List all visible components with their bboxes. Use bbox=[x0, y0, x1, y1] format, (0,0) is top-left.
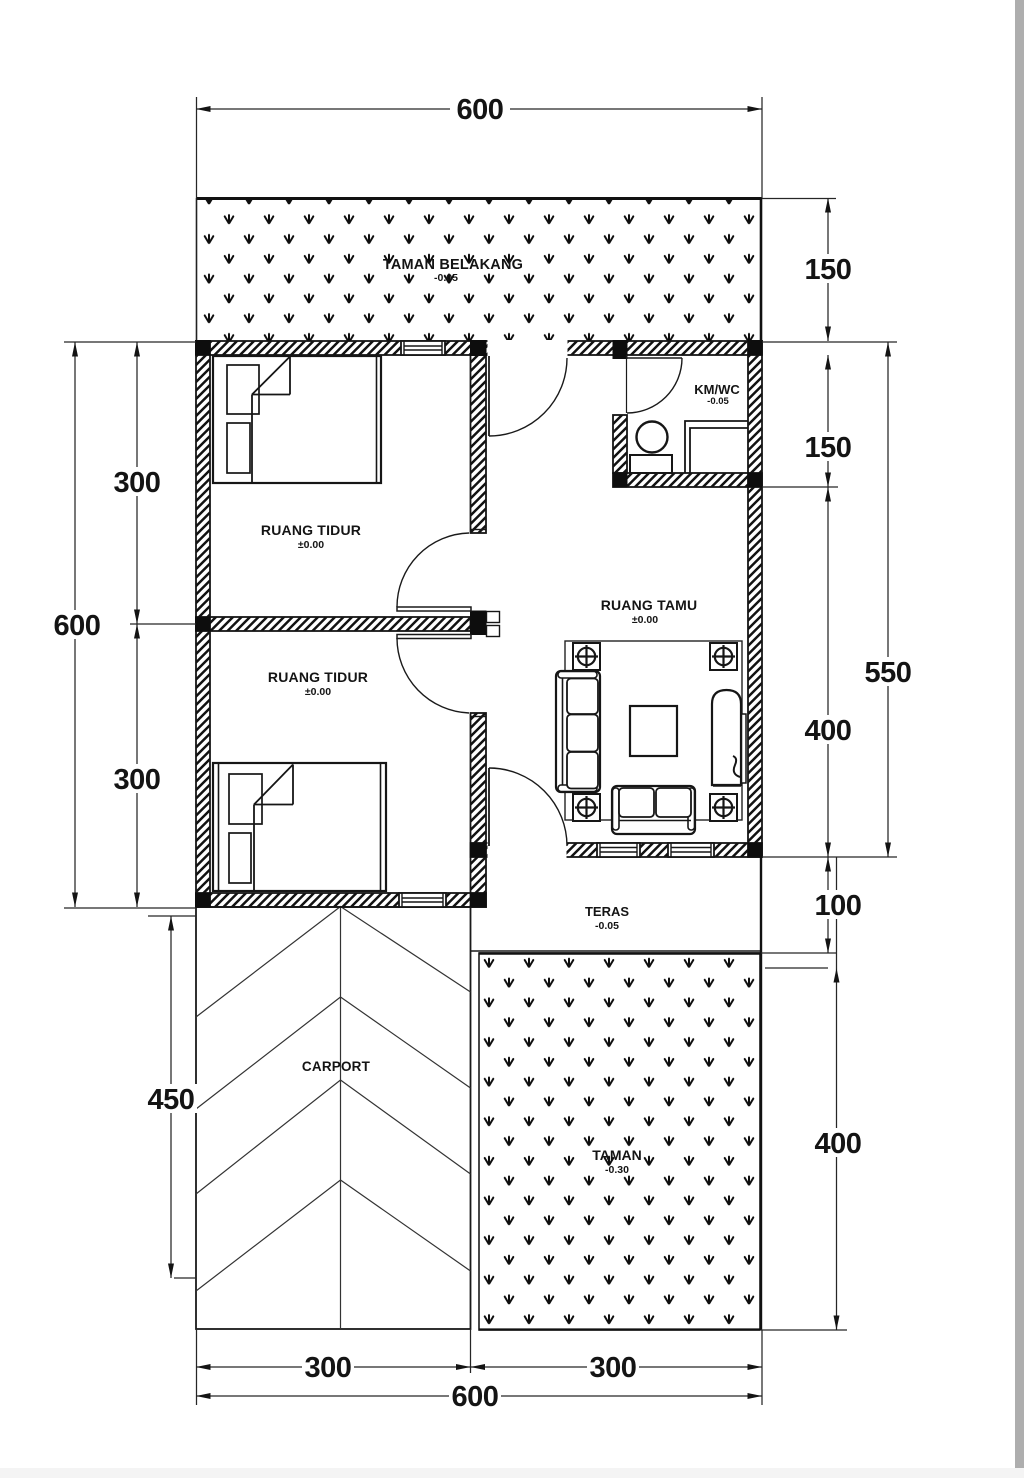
svg-text:300: 300 bbox=[114, 764, 161, 796]
svg-text:-0.05: -0.05 bbox=[595, 920, 619, 932]
svg-text:CARPORT: CARPORT bbox=[302, 1059, 371, 1074]
svg-text:RUANG TAMU: RUANG TAMU bbox=[601, 597, 698, 613]
svg-text:TAMAN BELAKANG: TAMAN BELAKANG bbox=[383, 257, 523, 273]
svg-text:RUANG TIDUR: RUANG TIDUR bbox=[261, 522, 361, 538]
svg-text:400: 400 bbox=[815, 1128, 862, 1160]
svg-text:600: 600 bbox=[457, 94, 504, 126]
svg-text:300: 300 bbox=[590, 1352, 637, 1384]
svg-text:600: 600 bbox=[54, 610, 101, 642]
svg-text:150: 150 bbox=[805, 432, 852, 464]
svg-text:300: 300 bbox=[114, 467, 161, 499]
svg-text:±0.00: ±0.00 bbox=[632, 614, 658, 626]
svg-text:300: 300 bbox=[305, 1352, 352, 1384]
svg-text:RUANG TIDUR: RUANG TIDUR bbox=[268, 669, 368, 685]
svg-text:150: 150 bbox=[805, 254, 852, 286]
svg-text:±0.00: ±0.00 bbox=[305, 686, 331, 698]
svg-text:±0.00: ±0.00 bbox=[298, 539, 324, 551]
svg-text:600: 600 bbox=[452, 1381, 499, 1413]
svg-text:-0.05: -0.05 bbox=[707, 396, 729, 407]
svg-text:-0.30: -0.30 bbox=[605, 1164, 629, 1176]
svg-text:TERAS: TERAS bbox=[585, 904, 629, 919]
svg-text:TAMAN: TAMAN bbox=[592, 1147, 642, 1163]
svg-text:550: 550 bbox=[865, 657, 912, 689]
svg-text:KM/WC: KM/WC bbox=[694, 382, 740, 397]
svg-text:100: 100 bbox=[815, 890, 862, 922]
svg-text:400: 400 bbox=[805, 715, 852, 747]
svg-text:-0.05: -0.05 bbox=[434, 272, 458, 284]
svg-text:450: 450 bbox=[148, 1084, 195, 1116]
